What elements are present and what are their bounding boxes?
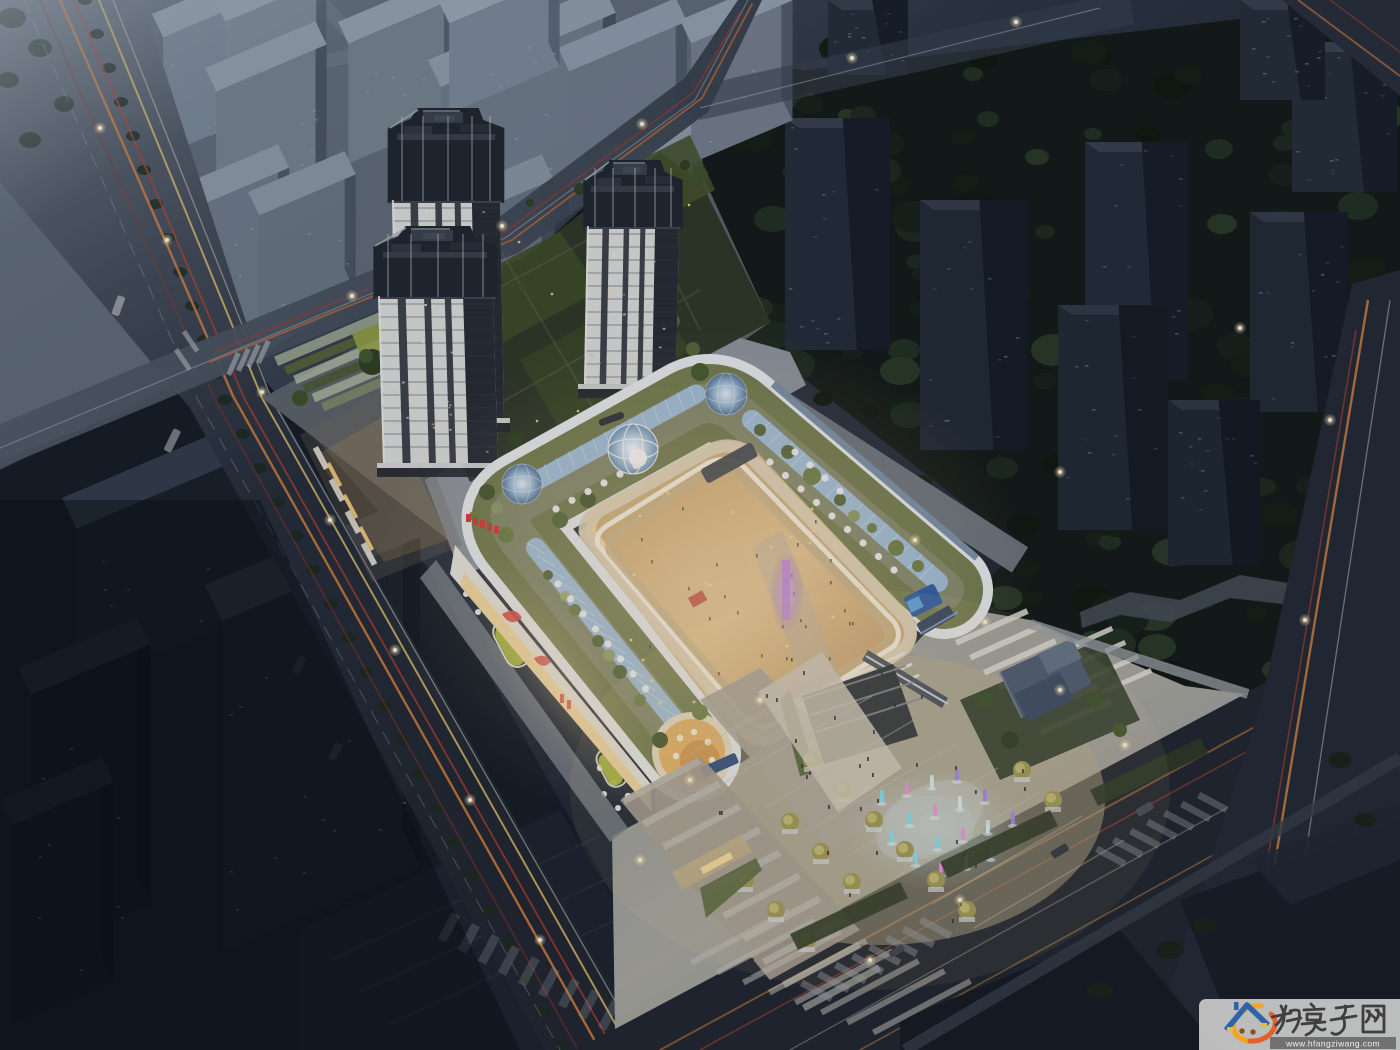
svg-text:www.hfangziwang.com: www.hfangziwang.com [1285, 1039, 1380, 1049]
